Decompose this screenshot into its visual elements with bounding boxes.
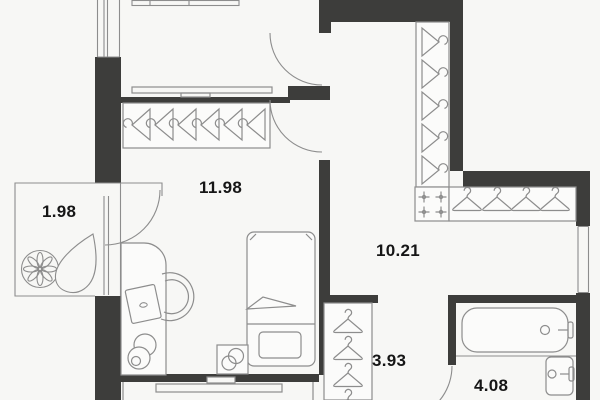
wall-bedroom-top: [118, 97, 290, 103]
spotlight-box: [415, 187, 449, 221]
door-swing-icon: [105, 190, 160, 245]
laptop-icon: [125, 284, 161, 323]
wardrobe: [449, 187, 576, 221]
room-label-balcony: 1.98: [42, 202, 76, 222]
door-swing-icon: [270, 100, 322, 152]
room-label-hallway: 10.21: [376, 241, 420, 261]
window-icon: [132, 1, 239, 6]
door-swing-icon: [398, 366, 452, 400]
wall-right-lower: [576, 293, 590, 400]
room-below-outline: [123, 382, 313, 400]
wall-topright-horizontal: [463, 171, 590, 187]
room-label-bedroom: 11.98: [199, 178, 242, 198]
counter-notch: [207, 377, 235, 383]
room-label-corridor: 3.93: [372, 351, 406, 371]
wall-closet-top: [319, 295, 378, 303]
nightstand-icon: [217, 345, 248, 374]
shelf-bracket: [181, 93, 210, 97]
hallway-closets: [415, 22, 576, 221]
wall-bathroom-door-stub: [448, 303, 456, 365]
window-icon: [98, 0, 120, 57]
plant-flower-icon: [22, 251, 59, 288]
sink-icon: [546, 357, 574, 395]
counter-icon: [156, 384, 282, 392]
pillow-icon: [259, 332, 301, 358]
wall-left-lower: [95, 296, 121, 400]
wall-hall-vertical: [450, 22, 463, 171]
wall-stub-top: [319, 22, 331, 33]
wall-top-band: [319, 0, 463, 22]
floor-plan-canvas: [0, 0, 600, 400]
bathtub-icon: [462, 308, 568, 352]
door-swing-icon: [270, 33, 322, 85]
wall-left-upper: [95, 57, 121, 183]
door-leaf-bar: [288, 86, 330, 100]
wall-bathroom-top: [448, 295, 590, 303]
shelf-icon: [132, 87, 272, 93]
corridor-closet: [324, 303, 372, 400]
office-chair-icon-inner: [164, 280, 188, 314]
balcony-window-icon: [104, 183, 121, 296]
window-icon: [578, 227, 589, 293]
plant-leaf-icon: [55, 234, 96, 292]
bedroom-furniture: [121, 87, 315, 400]
room-label-bathroom: 4.08: [474, 376, 508, 396]
